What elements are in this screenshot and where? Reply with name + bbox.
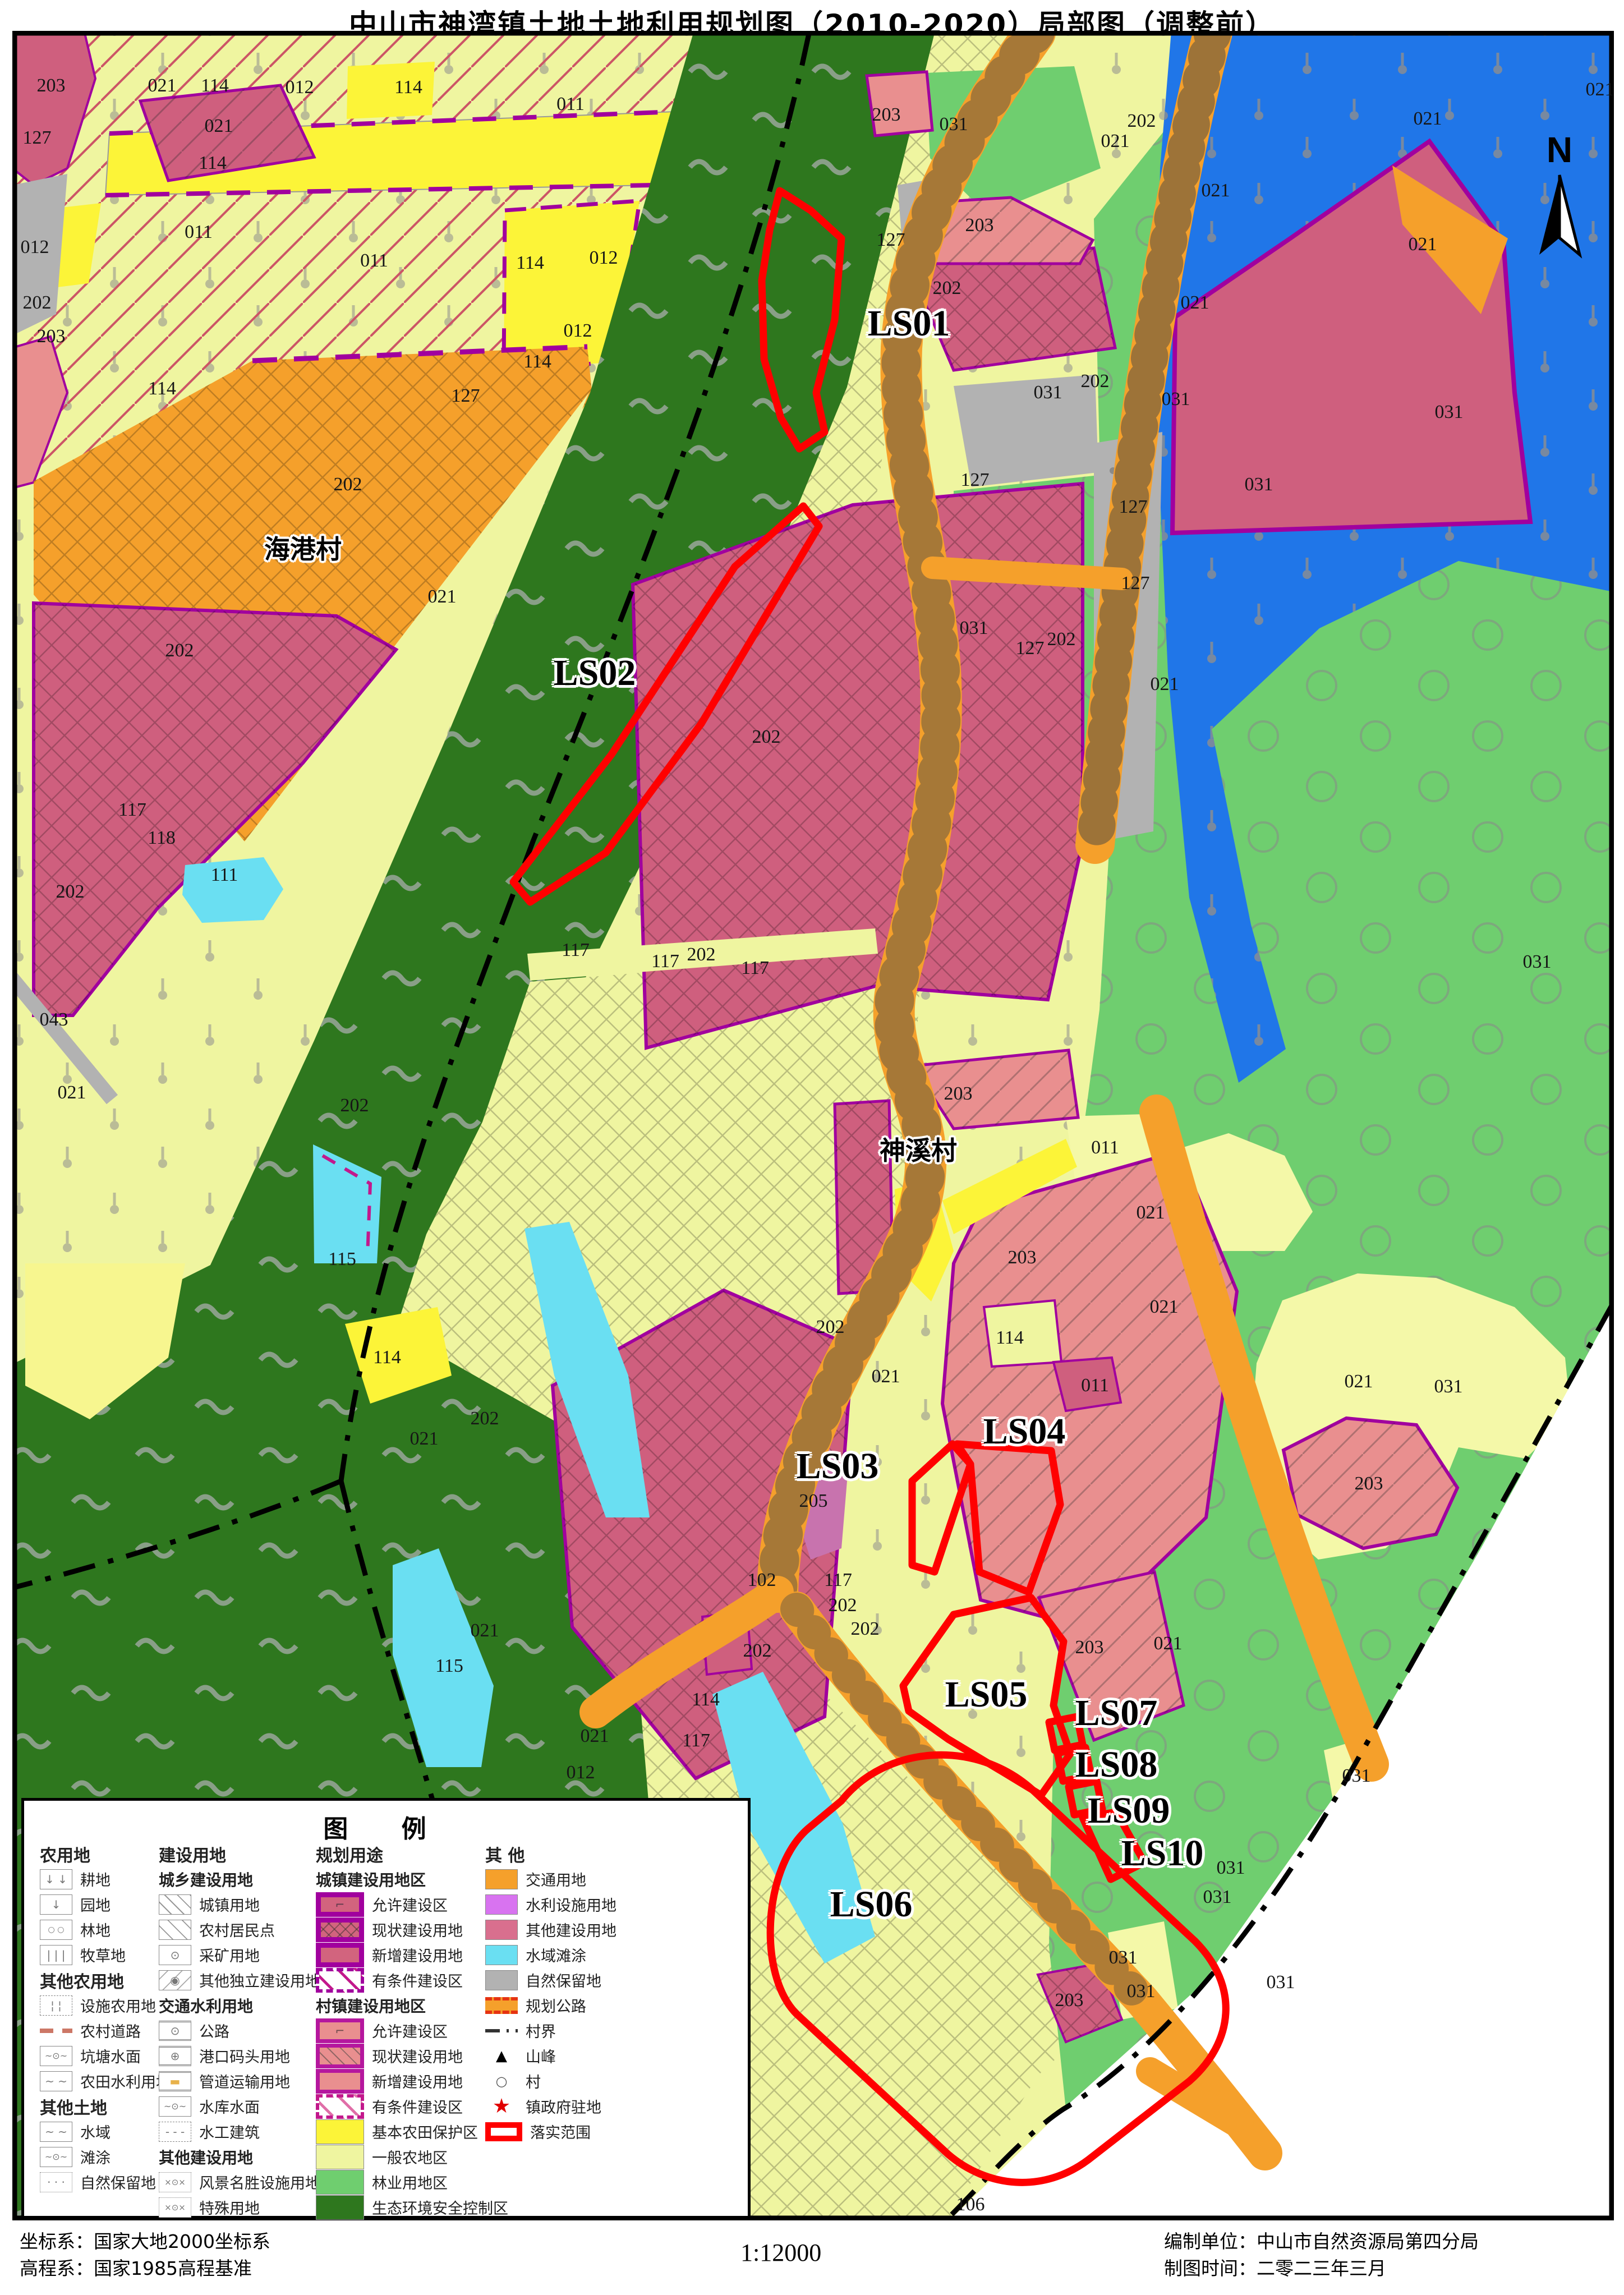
legend-swatch <box>485 2046 518 2066</box>
legend-row: 现状建设用地 <box>316 1917 484 1942</box>
legend-row: 有条件建设区 <box>316 1967 484 1993</box>
legend-row: 建设用地 <box>159 1841 327 1866</box>
legend-row: 采矿用地 <box>159 1942 327 1967</box>
legend-row: 交通用地 <box>485 1866 743 1892</box>
legend-row: 林业用地区 <box>316 2169 484 2195</box>
legend-row: 园地 <box>40 1892 172 1917</box>
legend-swatch <box>316 2094 364 2119</box>
legend-row: 村镇建设用地区 <box>316 1993 484 2018</box>
legend-row: 其他土地 <box>40 2094 172 2119</box>
legend-box: 图 例 农用地耕地园地林地牧草地其他农用地设施农用地农村道路坑塘水面农田水利用地… <box>21 1798 751 2219</box>
legend-swatch <box>485 1945 518 1965</box>
legend-swatch <box>40 2071 72 2091</box>
legend-row: 山峰 <box>485 2043 743 2068</box>
legend-swatch <box>40 1995 72 2016</box>
legend-row: 水利设施用地 <box>485 1892 743 1917</box>
legend-row: 其 他 <box>485 1841 743 1866</box>
legend-swatch <box>159 1894 191 1915</box>
legend-row: 耕地 <box>40 1866 172 1892</box>
legend-swatch <box>316 2044 364 2068</box>
legend-title: 图 例 <box>24 1809 748 1845</box>
legend-row: 交通水利用地 <box>159 1993 327 2018</box>
agency-note: 编制单位：中山市自然资源局第四分局 制图时间：二零二三年三月 <box>1164 2228 1479 2282</box>
legend-row: 新增建设用地 <box>316 1942 484 1967</box>
legend-column-agricultural: 农用地耕地园地林地牧草地其他农用地设施农用地农村道路坑塘水面农田水利用地其他土地… <box>40 1841 172 2195</box>
legend-swatch <box>485 1894 518 1915</box>
legend-row: 有条件建设区 <box>316 2094 484 2119</box>
legend-row: 农用地 <box>40 1841 172 1866</box>
map-footer: 坐标系：国家大地2000坐标系 高程系：国家1985高程基准 1:12000 编… <box>0 2222 1624 2295</box>
legend-swatch <box>485 2071 518 2091</box>
legend-row: 允许建设区 <box>316 1892 484 1917</box>
legend-swatch <box>316 2119 364 2144</box>
planning-map-page: 中山市神湾镇土地土地利用规划图（2010-2020）局部图（调整前） <box>0 0 1624 2295</box>
legend-swatch <box>159 2021 191 2041</box>
legend-swatch <box>485 2029 518 2032</box>
legend-swatch <box>316 1943 364 1967</box>
legend-swatch <box>40 2046 72 2066</box>
legend-swatch <box>40 1945 72 1965</box>
legend-swatch <box>316 2170 364 2195</box>
legend-row: 港口码头用地 <box>159 2043 327 2068</box>
legend-row: 村界 <box>485 2018 743 2043</box>
legend-column-construction: 建设用地城乡建设用地城镇用地农村居民点采矿用地其他独立建设用地交通水利用地公路港… <box>159 1841 327 2220</box>
legend-swatch <box>40 2172 72 2192</box>
legend-column-planning: 规划用途城镇建设用地区允许建设区现状建设用地新增建设用地有条件建设区村镇建设用地… <box>316 1841 484 2220</box>
legend-row: 公路 <box>159 2018 327 2043</box>
legend-swatch <box>159 2071 191 2091</box>
legend-swatch <box>485 2096 518 2117</box>
legend-row: 林地 <box>40 1917 172 1942</box>
legend-row: 自然保留地 <box>485 1967 743 1993</box>
legend-row: 农田水利用地 <box>40 2068 172 2094</box>
legend-row: 镇政府驻地 <box>485 2094 743 2119</box>
legend-swatch <box>159 2197 191 2218</box>
legend-row: 一般农地区 <box>316 2144 484 2169</box>
legend-row: 滩涂 <box>40 2144 172 2169</box>
legend-row: 水工建筑 <box>159 2119 327 2144</box>
legend-swatch <box>159 2096 191 2117</box>
legend-row: 允许建设区 <box>316 2018 484 2043</box>
legend-row: 其他独立建设用地 <box>159 1967 327 1993</box>
legend-row: 水库水面 <box>159 2094 327 2119</box>
legend-row: 城镇用地 <box>159 1892 327 1917</box>
legend-row: 城乡建设用地 <box>159 1866 327 1892</box>
legend-swatch <box>159 2172 191 2192</box>
legend-row: 生态环境安全控制区 <box>316 2195 484 2220</box>
legend-row: 现状建设用地 <box>316 2043 484 2068</box>
legend-row: 设施农用地 <box>40 1993 172 2018</box>
legend-swatch <box>485 1920 518 1940</box>
legend-row: 牧草地 <box>40 1942 172 1967</box>
legend-row: 自然保留地 <box>40 2169 172 2195</box>
legend-row: 农村居民点 <box>159 1917 327 1942</box>
legend-row: 新增建设用地 <box>316 2068 484 2094</box>
legend-row: 规划用途 <box>316 1841 484 1866</box>
legend-swatch <box>485 1970 518 1990</box>
legend-swatch <box>159 2122 191 2142</box>
legend-swatch <box>40 1894 72 1915</box>
legend-row: 规划公路 <box>485 1993 743 2018</box>
legend-row: 特殊用地 <box>159 2195 327 2220</box>
map-scale: 1:12000 <box>740 2238 821 2267</box>
legend-swatch <box>485 2122 522 2141</box>
legend-row: 其他建设用地 <box>485 1917 743 1942</box>
legend-row: 村 <box>485 2068 743 2094</box>
legend-column-other: 其 他交通用地水利设施用地其他建设用地水域滩涂自然保留地规划公路村界山峰村镇政府… <box>485 1841 743 2144</box>
legend-swatch <box>316 1892 364 1917</box>
legend-swatch <box>316 1968 364 1993</box>
legend-swatch <box>40 1869 72 1889</box>
legend-swatch <box>159 1945 191 1965</box>
legend-swatch <box>159 1970 191 1990</box>
legend-swatch <box>40 1920 72 1940</box>
legend-row: 水域滩涂 <box>485 1942 743 1967</box>
legend-swatch <box>159 2046 191 2066</box>
legend-swatch <box>316 2145 364 2169</box>
legend-row: 农村道路 <box>40 2018 172 2043</box>
legend-row: 城镇建设用地区 <box>316 1866 484 1892</box>
legend-swatch <box>40 2147 72 2167</box>
legend-swatch <box>40 2029 72 2033</box>
legend-row: 其他建设用地 <box>159 2144 327 2169</box>
legend-swatch <box>40 2122 72 2142</box>
legend-swatch <box>316 2018 364 2043</box>
legend-row: 坑塘水面 <box>40 2043 172 2068</box>
legend-row: 风景名胜设施用地 <box>159 2169 327 2195</box>
legend-swatch <box>316 1917 364 1942</box>
legend-swatch <box>485 1997 518 2014</box>
legend-row: 基本农田保护区 <box>316 2119 484 2144</box>
legend-row: 其他农用地 <box>40 1967 172 1993</box>
legend-swatch <box>316 2069 364 2094</box>
legend-swatch <box>485 1869 518 1889</box>
legend-row: 管道运输用地 <box>159 2068 327 2094</box>
coordinate-system-note: 坐标系：国家大地2000坐标系 高程系：国家1985高程基准 <box>20 2228 270 2282</box>
legend-row: 水域 <box>40 2119 172 2144</box>
legend-swatch <box>159 1920 191 1940</box>
legend-row: 落实范围 <box>485 2119 743 2144</box>
legend-swatch <box>316 2195 364 2220</box>
